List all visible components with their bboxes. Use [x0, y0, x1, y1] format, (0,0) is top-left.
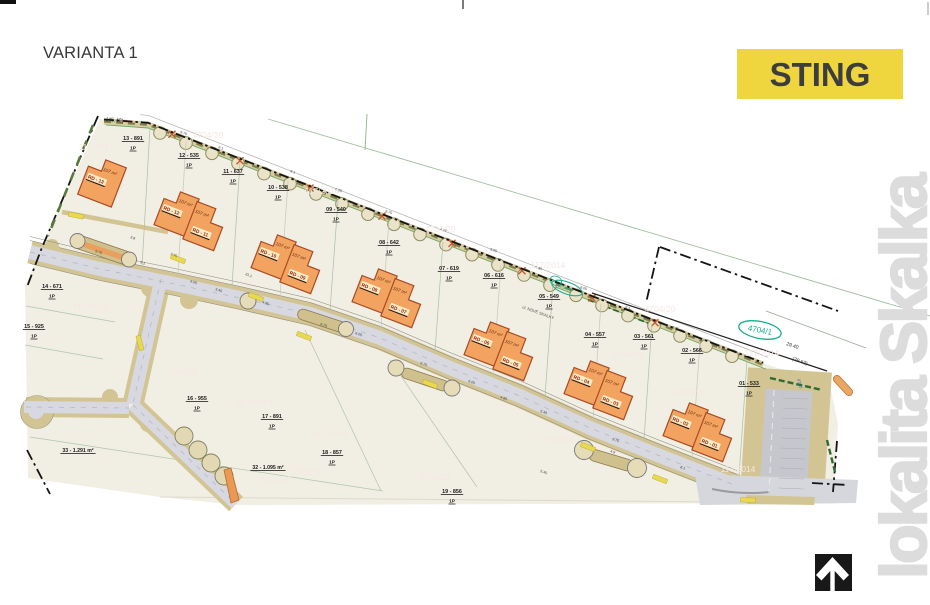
svg-text:4704/20: 4704/20	[293, 468, 324, 478]
svg-text:4704/20: 4704/20	[419, 472, 450, 482]
svg-text:07 - 619: 07 - 619	[439, 266, 459, 272]
svg-text:VARIANTA 1: VARIANTA 1	[43, 44, 138, 62]
svg-text:1P: 1P	[269, 424, 276, 430]
svg-text:4704/20: 4704/20	[675, 388, 706, 398]
svg-text:1P: 1P	[31, 334, 38, 340]
svg-text:4704/20: 4704/20	[167, 367, 198, 377]
svg-text:117/2014: 117/2014	[539, 434, 574, 444]
svg-text:4704/20: 4704/20	[193, 130, 224, 140]
svg-text:117/2014: 117/2014	[745, 348, 780, 358]
svg-text:4704/20: 4704/20	[425, 224, 456, 234]
svg-text:01 - 533: 01 - 533	[739, 381, 759, 387]
svg-text:1P: 1P	[186, 163, 193, 169]
svg-text:117/2014: 117/2014	[238, 398, 273, 408]
svg-text:1P: 1P	[230, 179, 237, 185]
svg-text:lokalita Skalka: lokalita Skalka	[867, 172, 930, 579]
svg-text:03 - 561: 03 - 561	[634, 334, 654, 340]
svg-text:1P: 1P	[446, 276, 453, 282]
svg-text:12 - 535: 12 - 535	[179, 153, 199, 159]
svg-text:1P: 1P	[194, 406, 201, 412]
svg-text:17 - 891: 17 - 891	[262, 414, 282, 420]
svg-text:1P: 1P	[746, 391, 753, 397]
svg-text:1P: 1P	[275, 195, 282, 201]
svg-text:1P: 1P	[689, 358, 696, 364]
svg-text:16 - 955: 16 - 955	[187, 396, 207, 402]
svg-text:4704/20: 4704/20	[645, 304, 676, 314]
svg-text:04 - 557: 04 - 557	[585, 332, 605, 338]
svg-text:05 - 549: 05 - 549	[539, 294, 559, 300]
svg-text:02 - 566: 02 - 566	[682, 348, 702, 354]
svg-text:09 - 540: 09 - 540	[326, 207, 346, 213]
svg-text:06 - 616: 06 - 616	[484, 273, 504, 279]
svg-text:10 - 538: 10 - 538	[268, 185, 288, 191]
svg-text:117/2014: 117/2014	[721, 464, 756, 474]
svg-text:18 - 857: 18 - 857	[322, 450, 342, 456]
svg-text:15 - 925: 15 - 925	[24, 324, 44, 330]
svg-text:117/2014: 117/2014	[313, 429, 348, 439]
svg-text:11 - 637: 11 - 637	[223, 169, 242, 175]
svg-text:117/2014: 117/2014	[79, 142, 114, 152]
svg-text:1P: 1P	[329, 460, 336, 466]
svg-text:1P: 1P	[592, 342, 599, 348]
svg-text:117/2014: 117/2014	[531, 260, 566, 270]
svg-text:4704/20: 4704/20	[261, 474, 292, 484]
svg-text:117/2014: 117/2014	[305, 186, 340, 196]
svg-text:1P: 1P	[641, 344, 648, 350]
svg-text:19 - 856: 19 - 856	[442, 489, 462, 495]
svg-text:32 - 1.095 m²: 32 - 1.095 m²	[252, 465, 283, 471]
svg-text:117/2014: 117/2014	[73, 302, 108, 312]
svg-text:1P: 1P	[449, 499, 456, 505]
svg-text:1P: 1P	[386, 250, 393, 256]
svg-text:08 - 642: 08 - 642	[379, 240, 399, 246]
svg-text:13 - 891: 13 - 891	[123, 136, 143, 142]
svg-text:1P: 1P	[491, 283, 498, 289]
svg-text:33 - 1.291 m²: 33 - 1.291 m²	[62, 448, 93, 454]
svg-text:1P: 1P	[333, 217, 340, 223]
svg-text:1P: 1P	[546, 304, 553, 310]
svg-text:STING: STING	[770, 56, 871, 93]
svg-text:1P: 1P	[49, 294, 56, 300]
svg-text:4704/20: 4704/20	[612, 350, 643, 360]
svg-text:1P: 1P	[130, 146, 137, 152]
svg-text:14 - 671: 14 - 671	[42, 284, 62, 290]
